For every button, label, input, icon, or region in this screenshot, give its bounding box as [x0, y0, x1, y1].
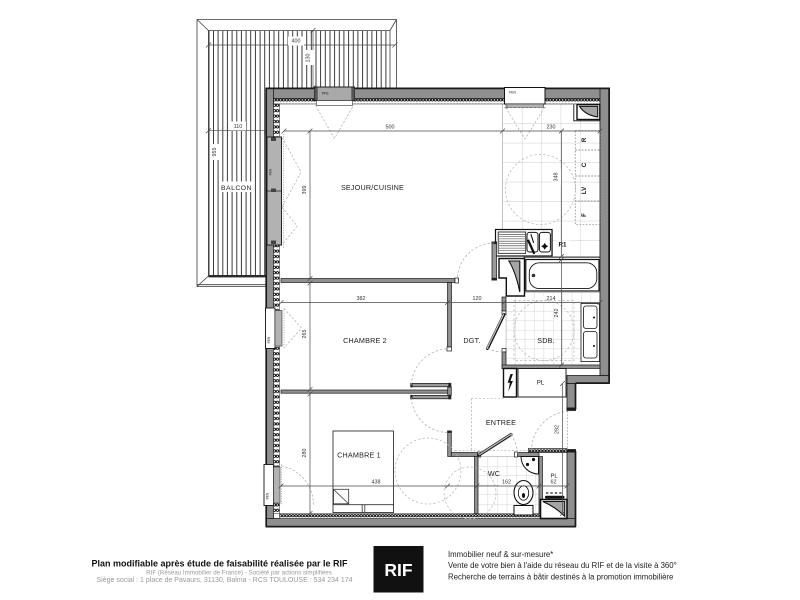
svg-text:Vente de votre bien à l'aide d: Vente de votre bien à l'aide du réseau d…	[448, 561, 677, 570]
svg-text:RIF: RIF	[384, 560, 413, 580]
svg-text:Recherche de terrains à bâtir: Recherche de terrains à bâtir destinés à…	[448, 573, 673, 582]
svg-text:BALCON: BALCON	[221, 185, 252, 192]
svg-text:LV: LV	[582, 187, 588, 194]
svg-text:DGT.: DGT.	[463, 336, 480, 345]
svg-text:292: 292	[555, 425, 561, 434]
svg-text:500: 500	[386, 125, 395, 131]
svg-text:FEN: FEN	[267, 336, 271, 343]
svg-text:400: 400	[292, 39, 301, 45]
svg-text:R: R	[582, 137, 588, 142]
svg-text:ENTREE: ENTREE	[486, 418, 516, 427]
svg-text:RIF (Réseau Immobilier de Fran: RIF (Réseau Immobilier de France) - Soci…	[146, 570, 332, 577]
svg-text:Immobilier neuf & sur-mesure*: Immobilier neuf & sur-mesure*	[448, 550, 553, 559]
svg-text:PL: PL	[537, 380, 545, 387]
svg-text:F: F	[582, 213, 588, 217]
svg-text:CHAMBRE 2: CHAMBRE 2	[343, 336, 387, 345]
svg-text:348: 348	[554, 173, 560, 182]
svg-text:FEN: FEN	[269, 168, 273, 175]
svg-text:SDB.: SDB.	[537, 336, 555, 345]
svg-text:Plan modifiable après étude de: Plan modifiable après étude de faisabili…	[91, 559, 348, 569]
svg-text:Siège social : 1 place de Pava: Siège social : 1 place de Pavaurs, 31130…	[96, 577, 352, 584]
svg-text:265: 265	[302, 330, 308, 339]
svg-text:WC: WC	[488, 469, 500, 478]
svg-text:R1: R1	[559, 241, 568, 248]
svg-text:110: 110	[234, 124, 243, 130]
svg-text:PL: PL	[550, 474, 558, 480]
svg-text:955: 955	[212, 148, 218, 157]
svg-text:162: 162	[502, 480, 511, 486]
svg-text:CHAMBRE 1: CHAMBRE 1	[337, 451, 381, 460]
svg-text:C: C	[582, 162, 588, 167]
svg-text:214: 214	[547, 296, 556, 302]
svg-text:242: 242	[554, 309, 560, 318]
svg-text:280: 280	[302, 449, 308, 458]
svg-text:FEN: FEN	[266, 492, 270, 499]
svg-text:438: 438	[372, 480, 381, 486]
svg-text:FEN: FEN	[509, 91, 516, 95]
svg-text:62: 62	[551, 480, 557, 486]
svg-text:230: 230	[547, 125, 556, 131]
svg-text:382: 382	[357, 296, 366, 302]
svg-text:SEJOUR/CUISINE: SEJOUR/CUISINE	[341, 183, 404, 192]
svg-text:130: 130	[306, 54, 312, 63]
svg-text:PFE: PFE	[322, 92, 329, 96]
svg-text:120: 120	[473, 296, 482, 302]
svg-text:399: 399	[302, 186, 308, 195]
